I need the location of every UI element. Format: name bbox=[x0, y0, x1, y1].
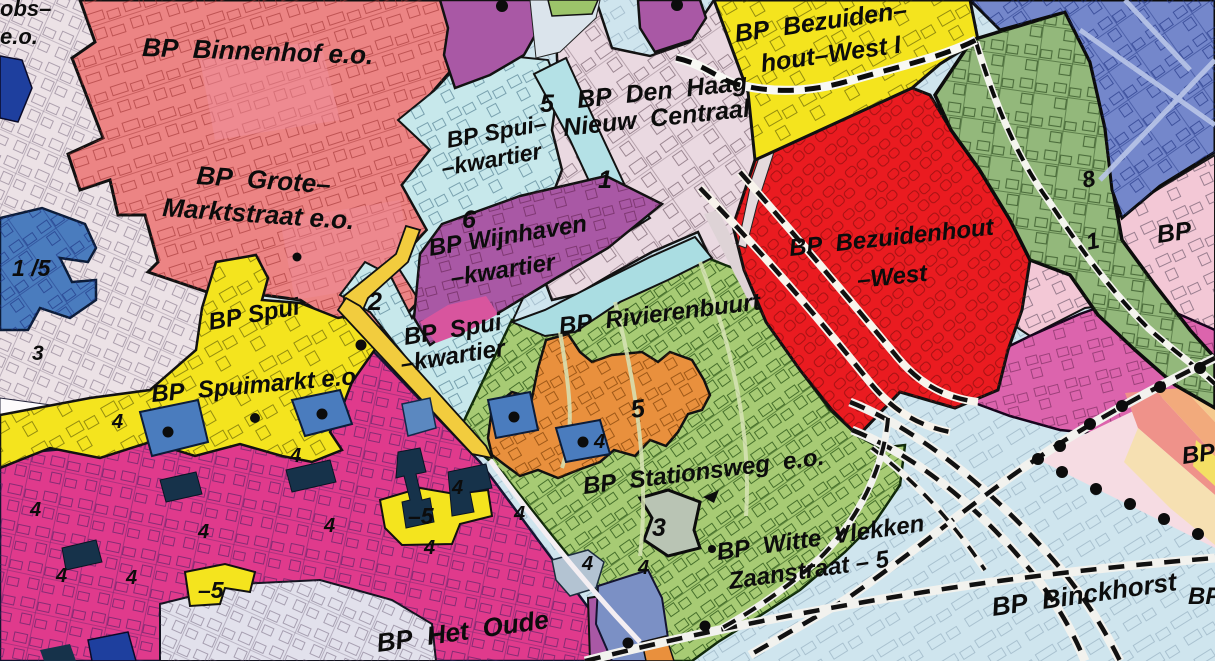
svg-text:4: 4 bbox=[125, 567, 137, 589]
svg-text:4: 4 bbox=[289, 445, 301, 467]
svg-text:4: 4 bbox=[197, 521, 209, 543]
svg-text:4: 4 bbox=[451, 477, 463, 499]
svg-text:3: 3 bbox=[32, 342, 44, 365]
svg-text:BP: BP bbox=[1155, 216, 1194, 249]
svg-text:BP: BP bbox=[1188, 583, 1215, 610]
svg-text:–5: –5 bbox=[198, 577, 225, 603]
svg-text:4: 4 bbox=[29, 499, 41, 521]
svg-text:4: 4 bbox=[637, 557, 649, 579]
svg-text:e.o.: e.o. bbox=[0, 24, 38, 49]
svg-text:1: 1 bbox=[598, 166, 612, 194]
svg-text:–5: –5 bbox=[408, 503, 435, 529]
svg-text:5: 5 bbox=[540, 90, 555, 118]
svg-text:BP: BP bbox=[1180, 438, 1215, 470]
svg-text:2: 2 bbox=[367, 288, 382, 316]
svg-text:4: 4 bbox=[323, 515, 335, 537]
svg-text:4: 4 bbox=[513, 503, 525, 525]
svg-text:4: 4 bbox=[423, 537, 435, 559]
svg-text:obs–: obs– bbox=[0, 0, 51, 21]
svg-text:3: 3 bbox=[652, 514, 666, 542]
svg-text:4: 4 bbox=[581, 553, 593, 575]
svg-text:4: 4 bbox=[593, 431, 605, 453]
svg-text:4: 4 bbox=[111, 411, 123, 433]
svg-text:1 /5: 1 /5 bbox=[12, 255, 52, 281]
svg-text:4: 4 bbox=[55, 565, 67, 587]
